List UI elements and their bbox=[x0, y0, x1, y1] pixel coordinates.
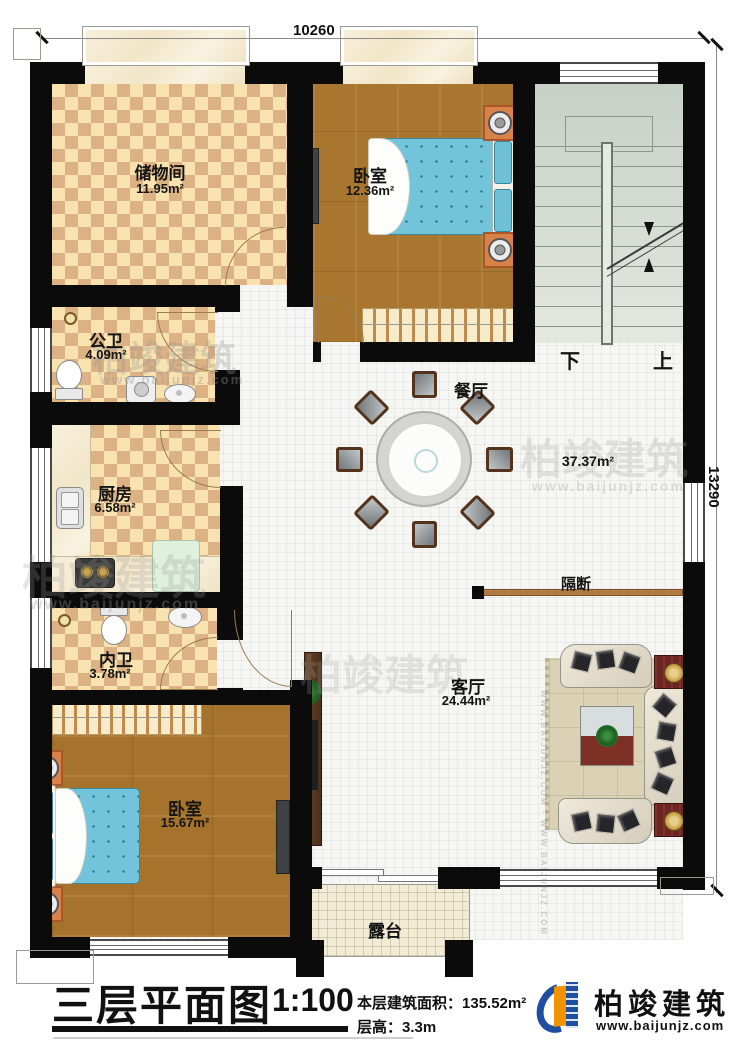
room-area-public-bath: 4.09m² bbox=[46, 347, 166, 362]
dim-tick bbox=[710, 38, 723, 51]
nightstand bbox=[483, 232, 517, 268]
window-living-east bbox=[683, 483, 705, 562]
room-label-dining: 餐厅 bbox=[411, 377, 531, 402]
room-area-storage: 11.95m² bbox=[100, 181, 220, 196]
bay-window-bedroom bbox=[340, 26, 478, 66]
dining-table bbox=[376, 411, 472, 507]
toilet-inner bbox=[100, 604, 126, 644]
brand-website: www.baijunjz.com bbox=[596, 1018, 724, 1033]
pillow-2 bbox=[494, 189, 512, 232]
floor-plan: 柏竣建筑 www.baijunjz.com 柏竣建筑 www.baijunjz.… bbox=[0, 0, 750, 1046]
window-bedroom-south bbox=[90, 939, 228, 956]
pillow-1 bbox=[494, 141, 512, 184]
wardrobe-bottom bbox=[52, 703, 202, 735]
sofa-pillow bbox=[595, 813, 616, 834]
dining-chair bbox=[336, 447, 363, 472]
floor-area-row: 本层建筑面积：135.52m² bbox=[357, 992, 526, 1013]
stove bbox=[75, 558, 115, 588]
room-label-terrace: 露台 bbox=[325, 917, 445, 942]
room-area-inner-bath: 3.78m² bbox=[50, 666, 170, 681]
window-living-south bbox=[500, 869, 657, 887]
window-inner-bath bbox=[30, 598, 52, 668]
axis-bracket bbox=[13, 28, 41, 60]
sliding-door bbox=[320, 869, 384, 876]
coffee-table bbox=[580, 706, 634, 766]
stairs-arrow-up bbox=[644, 258, 654, 272]
stairs-arrow-down bbox=[644, 222, 654, 236]
fridge bbox=[152, 540, 200, 592]
partition-cap bbox=[472, 586, 484, 599]
dim-right-value: 13290 bbox=[705, 466, 722, 508]
bay-window-storage bbox=[82, 26, 250, 66]
floor-height-label: 层高： bbox=[357, 1019, 402, 1036]
title-underline bbox=[52, 1026, 348, 1032]
dining-chair bbox=[412, 521, 437, 548]
floor-height-value: 3.3m bbox=[402, 1019, 436, 1036]
window-stairs bbox=[560, 62, 658, 84]
title-underline-light bbox=[53, 1037, 413, 1039]
window-kitchen bbox=[30, 448, 52, 562]
brand-name: 柏竣建筑 bbox=[594, 981, 730, 1023]
sink-public bbox=[164, 384, 196, 404]
floor-area-label: 本层建筑面积： bbox=[357, 995, 462, 1012]
area-hall: 37.37m² bbox=[528, 453, 648, 469]
plan-title: 三层平面图 bbox=[52, 972, 272, 1033]
sink-inner bbox=[168, 606, 202, 628]
stairs-rail bbox=[601, 142, 613, 345]
brand-logo-icon bbox=[536, 976, 588, 1038]
nightstand bbox=[483, 105, 517, 141]
dim-top-value: 10260 bbox=[293, 22, 335, 39]
sofa-pillow bbox=[655, 720, 677, 742]
stairs-down-label: 下 bbox=[552, 345, 588, 374]
wardrobe-top bbox=[362, 308, 515, 343]
washing-machine bbox=[126, 376, 156, 403]
table-plant bbox=[596, 725, 618, 747]
room-area-bedroom-top: 12.36m² bbox=[310, 183, 430, 198]
sofa-pillow bbox=[570, 810, 593, 833]
sofa-pillow bbox=[595, 649, 616, 670]
sliding-door-leaf bbox=[378, 875, 442, 882]
pendant-lamp bbox=[64, 312, 77, 325]
floor-area-value: 135.52m² bbox=[462, 995, 526, 1012]
dim-line-top bbox=[42, 38, 704, 39]
room-area-kitchen: 6.58m² bbox=[55, 500, 175, 515]
plan-scale: 1:100 bbox=[272, 982, 354, 1019]
room-area-bedroom-bottom: 15.67m² bbox=[125, 815, 245, 830]
axis-bracket bbox=[660, 877, 714, 895]
terrace-column-right bbox=[445, 940, 473, 977]
room-area-living: 24.44m² bbox=[406, 693, 526, 708]
stairs-up-label: 上 bbox=[645, 345, 681, 374]
tv-bedroom-bottom bbox=[276, 800, 290, 874]
label-partition: 隔断 bbox=[516, 573, 636, 594]
toilet-public bbox=[55, 360, 81, 400]
dining-chair bbox=[486, 447, 513, 472]
floor-height-row: 层高：3.3m bbox=[357, 1016, 436, 1037]
pendant-lamp bbox=[58, 614, 71, 627]
